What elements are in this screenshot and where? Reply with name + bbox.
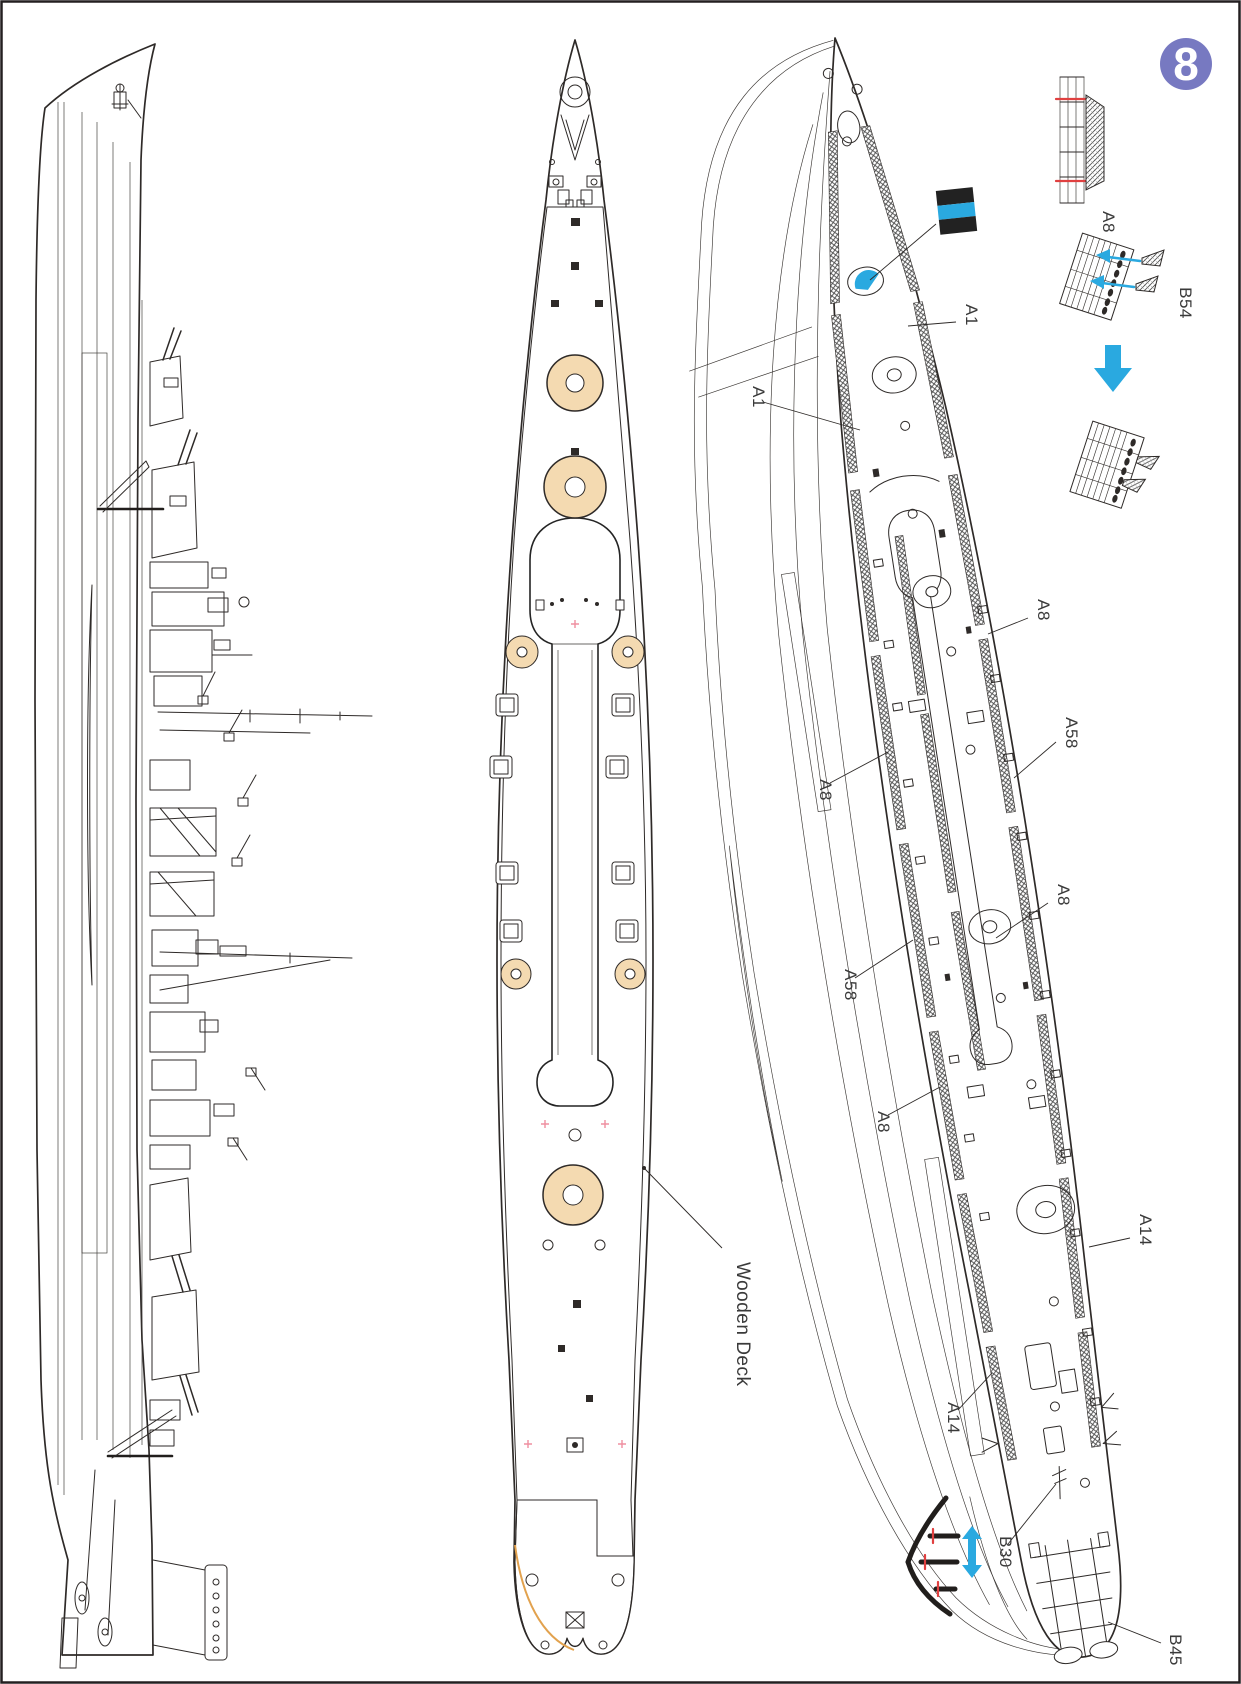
callout-a1-lower: A1 bbox=[749, 386, 768, 408]
callout-a8-left-fore: A8 bbox=[816, 779, 835, 801]
callout-a14-right: A14 bbox=[1136, 1214, 1155, 1246]
callout-b45: B45 bbox=[1166, 1634, 1185, 1666]
step-number: 8 bbox=[1173, 38, 1199, 90]
callout-a58-right: A58 bbox=[1062, 717, 1081, 749]
wooden-deck-label: Wooden Deck bbox=[732, 1262, 753, 1387]
page-canvas: Wooden Deck bbox=[0, 0, 1241, 1684]
callout-a8-left-aft: A8 bbox=[874, 1111, 893, 1133]
callout-a58-left: A58 bbox=[841, 969, 860, 1001]
callout-b30: B30 bbox=[996, 1536, 1015, 1568]
callout-assembly-b54: B54 bbox=[1176, 287, 1195, 319]
callout-a8-right-mid: A8 bbox=[1054, 884, 1073, 906]
callout-a14-left: A14 bbox=[944, 1402, 963, 1434]
callout-a8-right-fore: A8 bbox=[1034, 599, 1053, 621]
callout-a1-upper: A1 bbox=[962, 304, 981, 326]
instruction-page: Wooden Deck bbox=[0, 0, 1241, 1684]
step-badge: 8 bbox=[1160, 38, 1212, 90]
callout-assembly-a8: A8 bbox=[1099, 211, 1118, 233]
color-marking-swatch bbox=[936, 187, 977, 235]
